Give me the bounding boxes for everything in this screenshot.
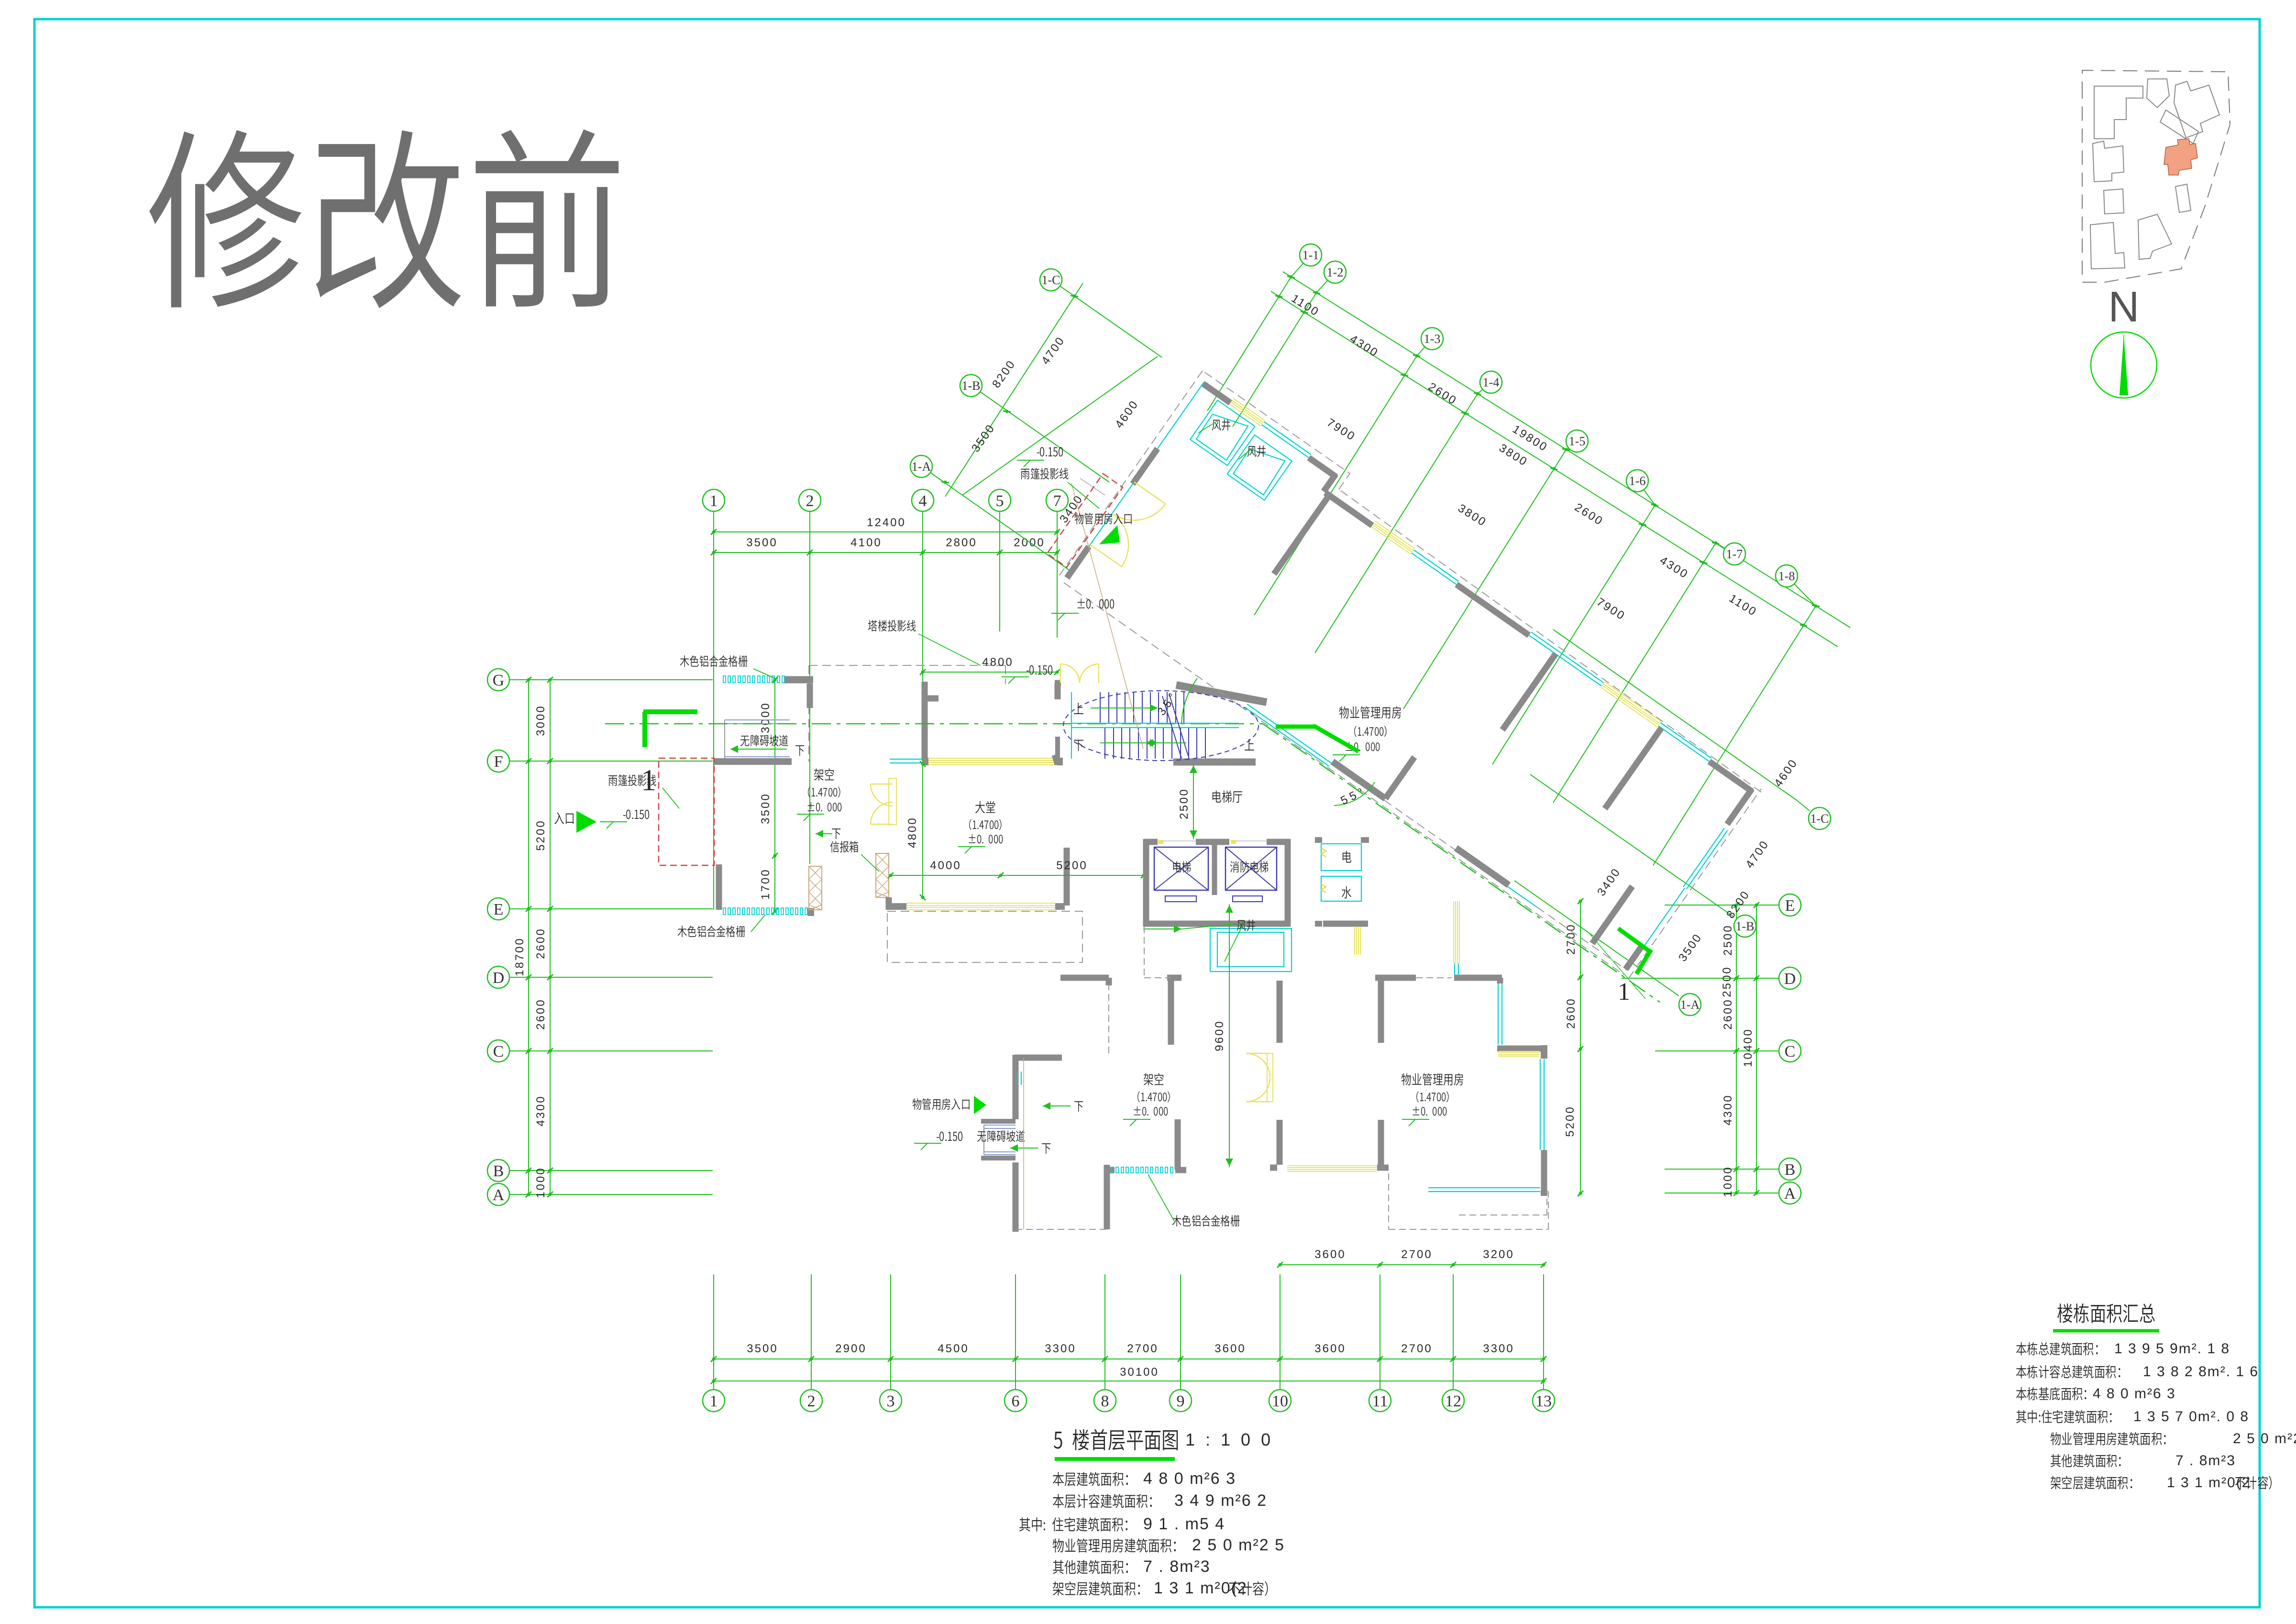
svg-text:1-B: 1-B [1736, 919, 1755, 933]
svg-text:10: 10 [1272, 1392, 1288, 1410]
svg-text:2: 2 [806, 492, 814, 510]
svg-text:2700: 2700 [1127, 1342, 1158, 1355]
svg-text:2500: 2500 [1722, 924, 1734, 955]
svg-text:4: 4 [919, 492, 927, 510]
svg-text:2 5 0 m²2 5: 2 5 0 m²2 5 [1192, 1536, 1285, 1554]
svg-text:1-2: 1-2 [1327, 265, 1344, 279]
svg-text:1700: 1700 [759, 868, 772, 899]
svg-text:B: B [1785, 1161, 1796, 1179]
svg-text:2500: 2500 [1178, 788, 1191, 819]
svg-text:B: B [493, 1162, 504, 1180]
svg-text:1-4: 1-4 [1483, 376, 1500, 389]
svg-text:C: C [493, 1043, 504, 1061]
svg-text:2000: 2000 [1014, 536, 1045, 549]
svg-text:E: E [1785, 897, 1795, 915]
svg-text:11: 11 [1372, 1392, 1388, 1410]
svg-text:3000: 3000 [759, 702, 772, 733]
svg-text:D: D [1784, 970, 1796, 988]
svg-text:2700: 2700 [1401, 1248, 1432, 1261]
svg-text:3: 3 [887, 1392, 895, 1410]
svg-text:3 4 9 m²6 2: 3 4 9 m²6 2 [1174, 1491, 1267, 1510]
svg-text:4 8 0 m²6 3: 4 8 0 m²6 3 [1143, 1469, 1236, 1488]
svg-text:A: A [493, 1186, 505, 1204]
svg-text:1 3 9 5 9m². 1 8: 1 3 9 5 9m². 1 8 [2114, 1341, 2230, 1357]
svg-text:30100: 30100 [1120, 1366, 1159, 1379]
svg-text:3300: 3300 [1483, 1342, 1514, 1355]
svg-text:2: 2 [807, 1392, 816, 1410]
svg-text:1 3 8 2 8m². 1 6: 1 3 8 2 8m². 1 6 [2143, 1364, 2259, 1380]
svg-text:10400: 10400 [1742, 1028, 1755, 1067]
svg-text:3200: 3200 [1483, 1248, 1514, 1261]
svg-text:1-1: 1-1 [1303, 248, 1319, 262]
svg-text:2800: 2800 [946, 536, 977, 549]
svg-text:4500: 4500 [938, 1342, 969, 1355]
svg-text:9 1 . m5 4: 9 1 . m5 4 [1143, 1515, 1225, 1533]
svg-text:12400: 12400 [867, 516, 906, 529]
svg-text:9: 9 [1177, 1392, 1185, 1410]
svg-text:1: 1 [1618, 978, 1630, 1005]
svg-text:1 : 1 0 0: 1 : 1 0 0 [1185, 1430, 1273, 1449]
svg-text:1-8: 1-8 [1778, 569, 1795, 583]
svg-text:2700: 2700 [1565, 923, 1578, 954]
svg-text:A: A [1784, 1185, 1796, 1203]
svg-text:4000: 4000 [930, 859, 961, 872]
svg-text:3500: 3500 [759, 793, 772, 824]
svg-text:4800: 4800 [906, 817, 919, 848]
svg-text:2500: 2500 [1721, 966, 1733, 997]
svg-text:1000: 1000 [534, 1167, 547, 1198]
svg-text:1-3: 1-3 [1424, 332, 1441, 346]
svg-text:N: N [2108, 283, 2140, 331]
svg-text:7 . 8m²3: 7 . 8m²3 [2175, 1453, 2236, 1469]
svg-text:3500: 3500 [747, 1342, 778, 1355]
svg-text:7 . 8m²3: 7 . 8m²3 [1143, 1558, 1211, 1576]
svg-text:7: 7 [1053, 492, 1061, 510]
svg-text:2700: 2700 [1401, 1342, 1432, 1355]
svg-text:6: 6 [1012, 1392, 1020, 1410]
svg-text:2600: 2600 [1565, 997, 1578, 1028]
svg-text:1000: 1000 [1722, 1166, 1734, 1197]
svg-text:3500: 3500 [746, 536, 777, 549]
svg-text:2600: 2600 [1722, 998, 1734, 1029]
svg-text:2600: 2600 [534, 928, 547, 959]
svg-text:3300: 3300 [1045, 1342, 1076, 1355]
svg-text:4800: 4800 [982, 656, 1013, 669]
svg-text:5200: 5200 [534, 819, 547, 851]
svg-text:1-A: 1-A [912, 460, 931, 474]
svg-text:1-7: 1-7 [1726, 547, 1743, 561]
svg-text:C: C [1785, 1043, 1796, 1061]
svg-text:4 8 0 m²6 3: 4 8 0 m²6 3 [2093, 1386, 2176, 1402]
svg-text:1-B: 1-B [962, 379, 981, 393]
svg-text:5200: 5200 [1056, 859, 1087, 872]
svg-text:1-6: 1-6 [1629, 474, 1646, 488]
svg-text:1: 1 [710, 492, 718, 510]
svg-text:18700: 18700 [513, 937, 526, 976]
svg-text:8: 8 [1101, 1392, 1109, 1410]
svg-text:3000: 3000 [534, 705, 547, 736]
svg-text:4100: 4100 [850, 536, 882, 549]
svg-text:3600: 3600 [1314, 1248, 1346, 1261]
svg-text:1-C: 1-C [1042, 273, 1060, 287]
svg-text:12: 12 [1445, 1392, 1461, 1410]
svg-text:1: 1 [710, 1392, 718, 1410]
svg-text:2600: 2600 [534, 998, 547, 1029]
svg-text:1-A: 1-A [1680, 998, 1700, 1012]
svg-text:4300: 4300 [1722, 1094, 1734, 1125]
svg-text:3600: 3600 [1314, 1342, 1346, 1355]
svg-text:2 5 0 m²2 5: 2 5 0 m²2 5 [2233, 1431, 2296, 1447]
svg-text:E: E [494, 901, 504, 918]
svg-text:5200: 5200 [1564, 1105, 1577, 1137]
svg-text:4300: 4300 [534, 1095, 547, 1126]
svg-text:G: G [493, 672, 505, 689]
svg-text:1: 1 [641, 763, 656, 797]
svg-text:D: D [493, 969, 505, 987]
svg-text:1-C: 1-C [1810, 812, 1829, 826]
svg-text:1-5: 1-5 [1569, 434, 1586, 448]
svg-text:13: 13 [1535, 1392, 1552, 1410]
svg-text:9600: 9600 [1213, 1020, 1226, 1051]
svg-text:5: 5 [996, 492, 1004, 510]
svg-text:1 3 5 7 0m². 0 8: 1 3 5 7 0m². 0 8 [2133, 1409, 2249, 1425]
svg-text:3600: 3600 [1214, 1342, 1246, 1355]
svg-text:F: F [494, 753, 503, 771]
svg-text:1 3 1 m²0(2: 1 3 1 m²0(2 [1154, 1579, 1247, 1597]
svg-text:2900: 2900 [835, 1342, 866, 1355]
